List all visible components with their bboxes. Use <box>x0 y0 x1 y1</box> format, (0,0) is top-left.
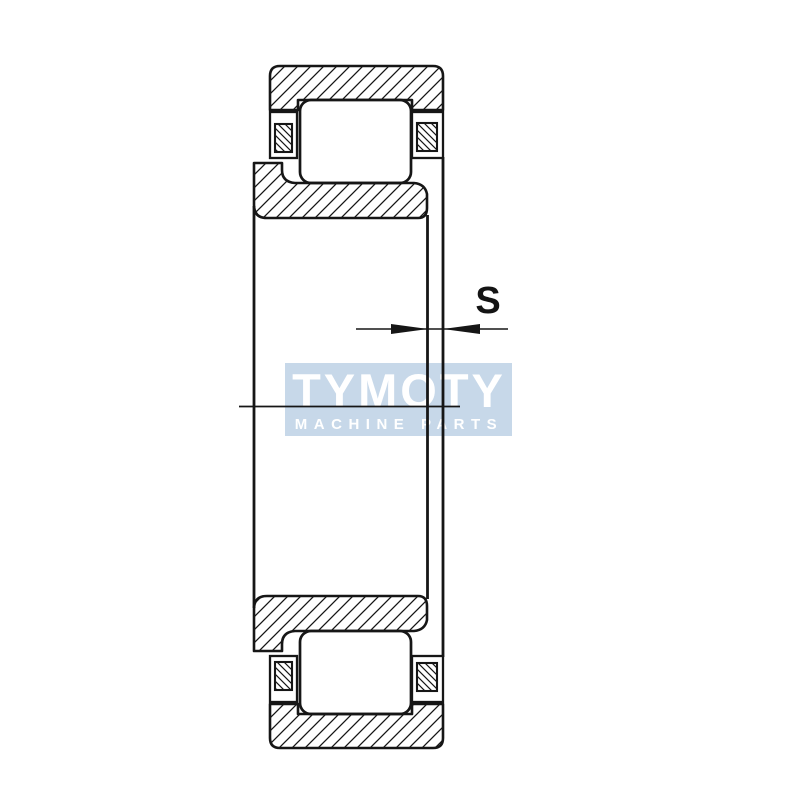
cage-top-right-bar <box>417 123 437 151</box>
roller-top <box>300 100 411 183</box>
cage-bottom-right-bar <box>417 663 437 691</box>
roller-bottom <box>300 631 411 714</box>
diagram-svg: TYMOTY MACHINE PARTS <box>0 0 800 800</box>
dimension-label: S <box>475 280 500 322</box>
dimension-arrow-left <box>391 324 428 334</box>
watermark: TYMOTY MACHINE PARTS <box>285 363 512 436</box>
clearance-dimension: S <box>356 280 508 334</box>
bearing-cross-section <box>239 66 460 748</box>
cage-bottom-left-bar <box>275 662 292 690</box>
dimension-arrow-right <box>443 324 480 334</box>
watermark-title: TYMOTY <box>292 364 506 417</box>
bearing-cross-section-diagram: TYMOTY MACHINE PARTS <box>0 0 800 800</box>
cage-top-left-bar <box>275 124 292 152</box>
watermark-subtitle: MACHINE PARTS <box>295 416 503 433</box>
